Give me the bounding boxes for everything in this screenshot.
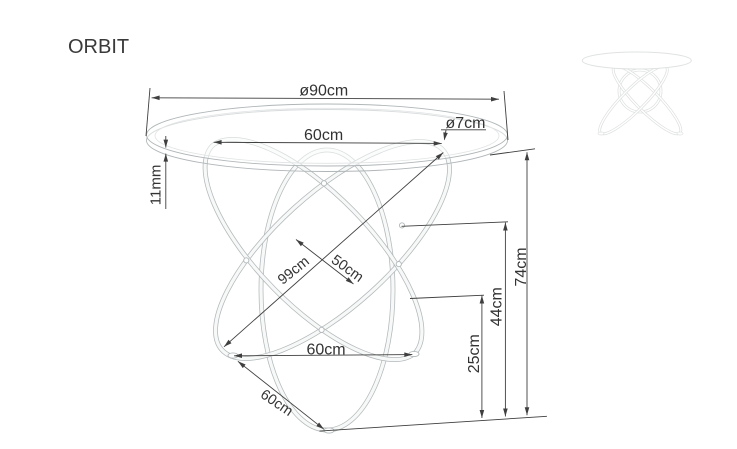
- svg-text:60cm: 60cm: [304, 127, 343, 144]
- svg-text:25cm: 25cm: [466, 334, 483, 373]
- svg-text:ø90cm: ø90cm: [299, 82, 348, 99]
- svg-text:74cm: 74cm: [513, 247, 530, 286]
- svg-text:11mm: 11mm: [148, 165, 165, 206]
- svg-text:99cm: 99cm: [275, 254, 313, 289]
- svg-text:44cm: 44cm: [488, 287, 505, 326]
- svg-text:60cm: 60cm: [306, 341, 345, 358]
